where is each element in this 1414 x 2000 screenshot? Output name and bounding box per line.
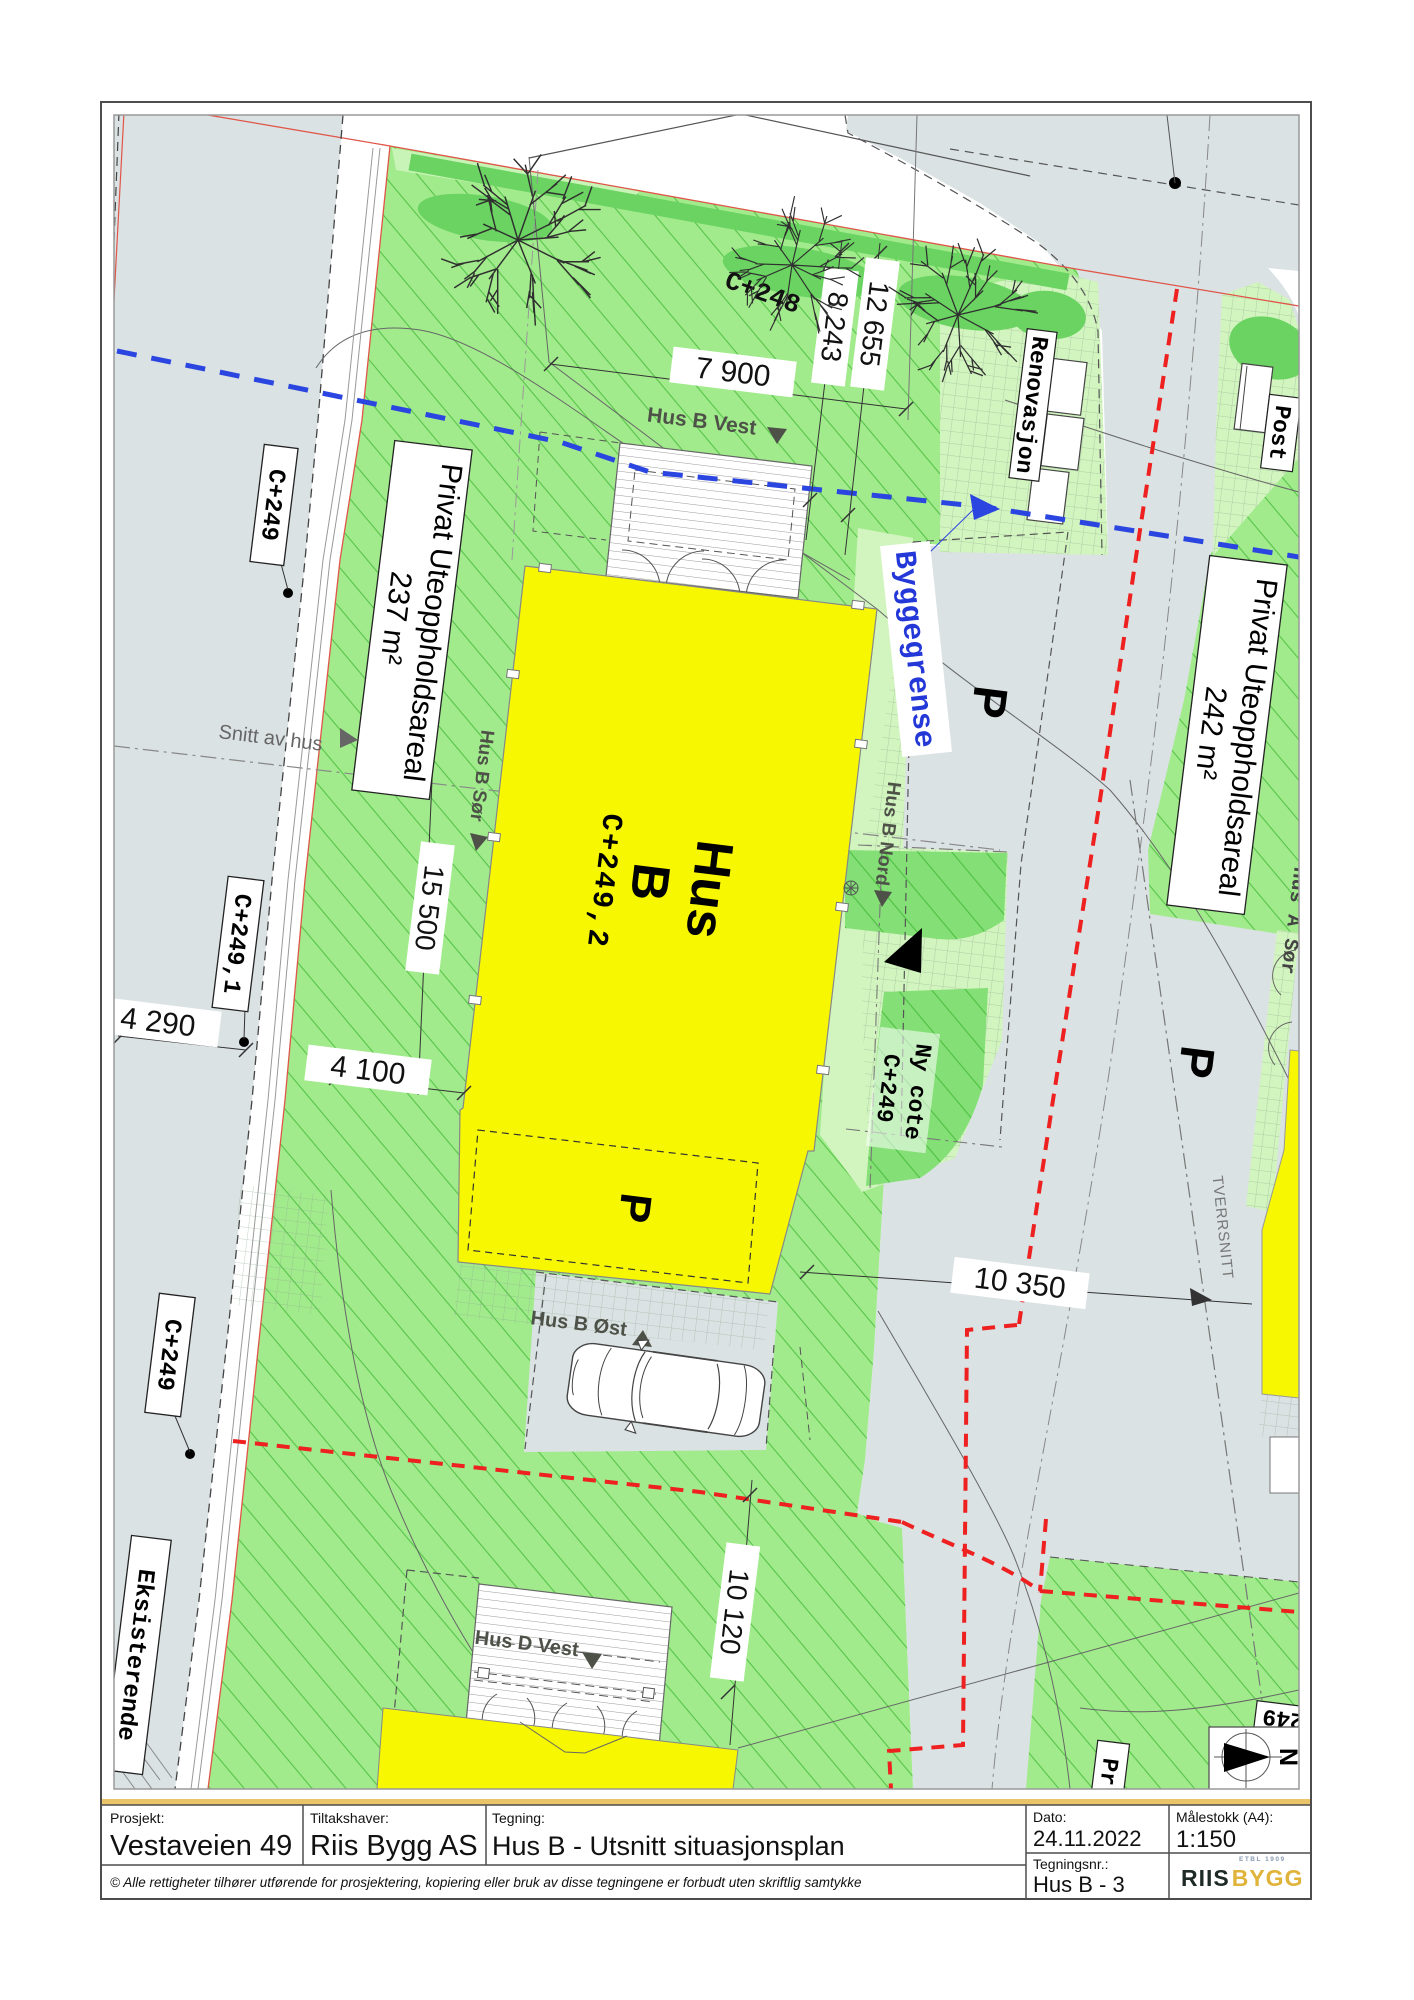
svg-text:Vestaveien 49: Vestaveien 49 [110, 1830, 292, 1862]
svg-text:P: P [1167, 1043, 1224, 1081]
svg-text:Riis Bygg AS: Riis Bygg AS [310, 1830, 478, 1862]
svg-text:RIISBYGG: RIISBYGG [1181, 1865, 1303, 1891]
svg-text:Hus: Hus [674, 837, 744, 942]
svg-text:P: P [960, 683, 1017, 721]
svg-text:Tegningsnr.:: Tegningsnr.: [1033, 1856, 1109, 1872]
svg-text:Pr: Pr [1093, 1756, 1122, 1787]
svg-text:P: P [608, 1190, 660, 1225]
svg-text:© Alle rettigheter tilhører ut: © Alle rettigheter tilhører utførende fo… [110, 1875, 862, 1890]
svg-text:Hus B - 3: Hus B - 3 [1033, 1872, 1125, 1897]
svg-text:Dato:: Dato: [1033, 1809, 1066, 1825]
svg-text:Målestokk (A4):: Målestokk (A4): [1176, 1809, 1273, 1825]
svg-text:ETBL 1909: ETBL 1909 [1239, 1856, 1286, 1863]
svg-text:Tegning:: Tegning: [492, 1810, 545, 1826]
svg-text:24.11.2022: 24.11.2022 [1033, 1826, 1141, 1851]
svg-text:Hus B - Utsnitt situasjonsplan: Hus B - Utsnitt situasjonsplan [492, 1831, 845, 1861]
svg-text:Prosjekt:: Prosjekt: [110, 1810, 164, 1826]
svg-text:N: N [1274, 1748, 1302, 1766]
svg-text:B: B [618, 860, 680, 904]
svg-text:1:150: 1:150 [1176, 1826, 1236, 1853]
svg-text:Tiltakshaver:: Tiltakshaver: [310, 1810, 389, 1826]
